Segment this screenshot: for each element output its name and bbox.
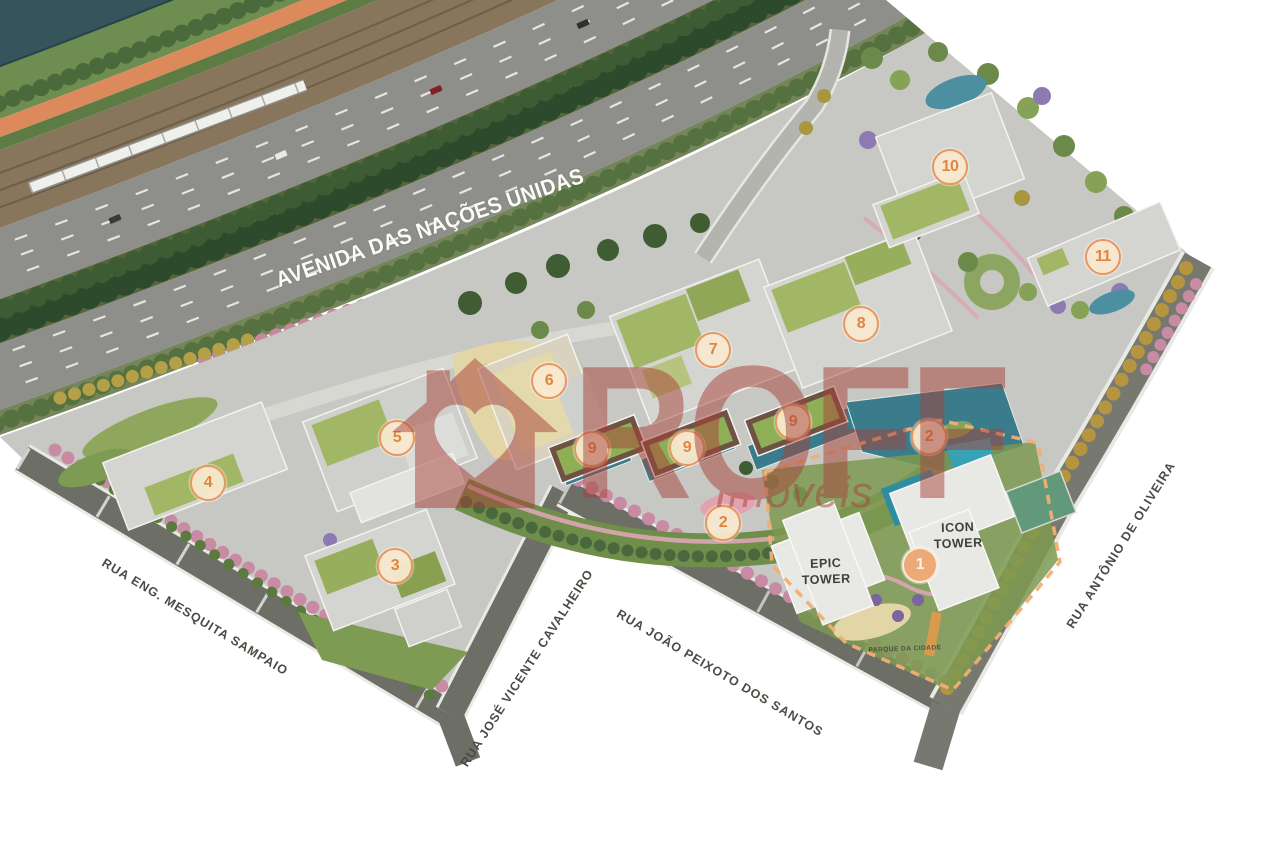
building-marker-10: 10	[932, 149, 968, 185]
building-marker-5: 5	[379, 420, 415, 456]
building-marker-6: 6	[531, 363, 567, 399]
building-markers-layer: 1223456789991011	[0, 0, 1280, 856]
building-marker-11: 11	[1085, 239, 1121, 275]
building-marker-1: 1	[902, 547, 938, 583]
building-marker-2: 2	[911, 419, 947, 455]
building-marker-8: 8	[843, 306, 879, 342]
building-marker-9: 9	[574, 431, 610, 467]
building-marker-7: 7	[695, 332, 731, 368]
building-marker-2: 2	[705, 505, 741, 541]
building-marker-9: 9	[669, 430, 705, 466]
building-marker-3: 3	[377, 548, 413, 584]
building-marker-4: 4	[190, 465, 226, 501]
site-plan-screenshot: AVENIDA DAS NAÇÕES UNIDAS RUA ENG. MESQU…	[0, 0, 1280, 856]
building-marker-9: 9	[775, 404, 811, 440]
